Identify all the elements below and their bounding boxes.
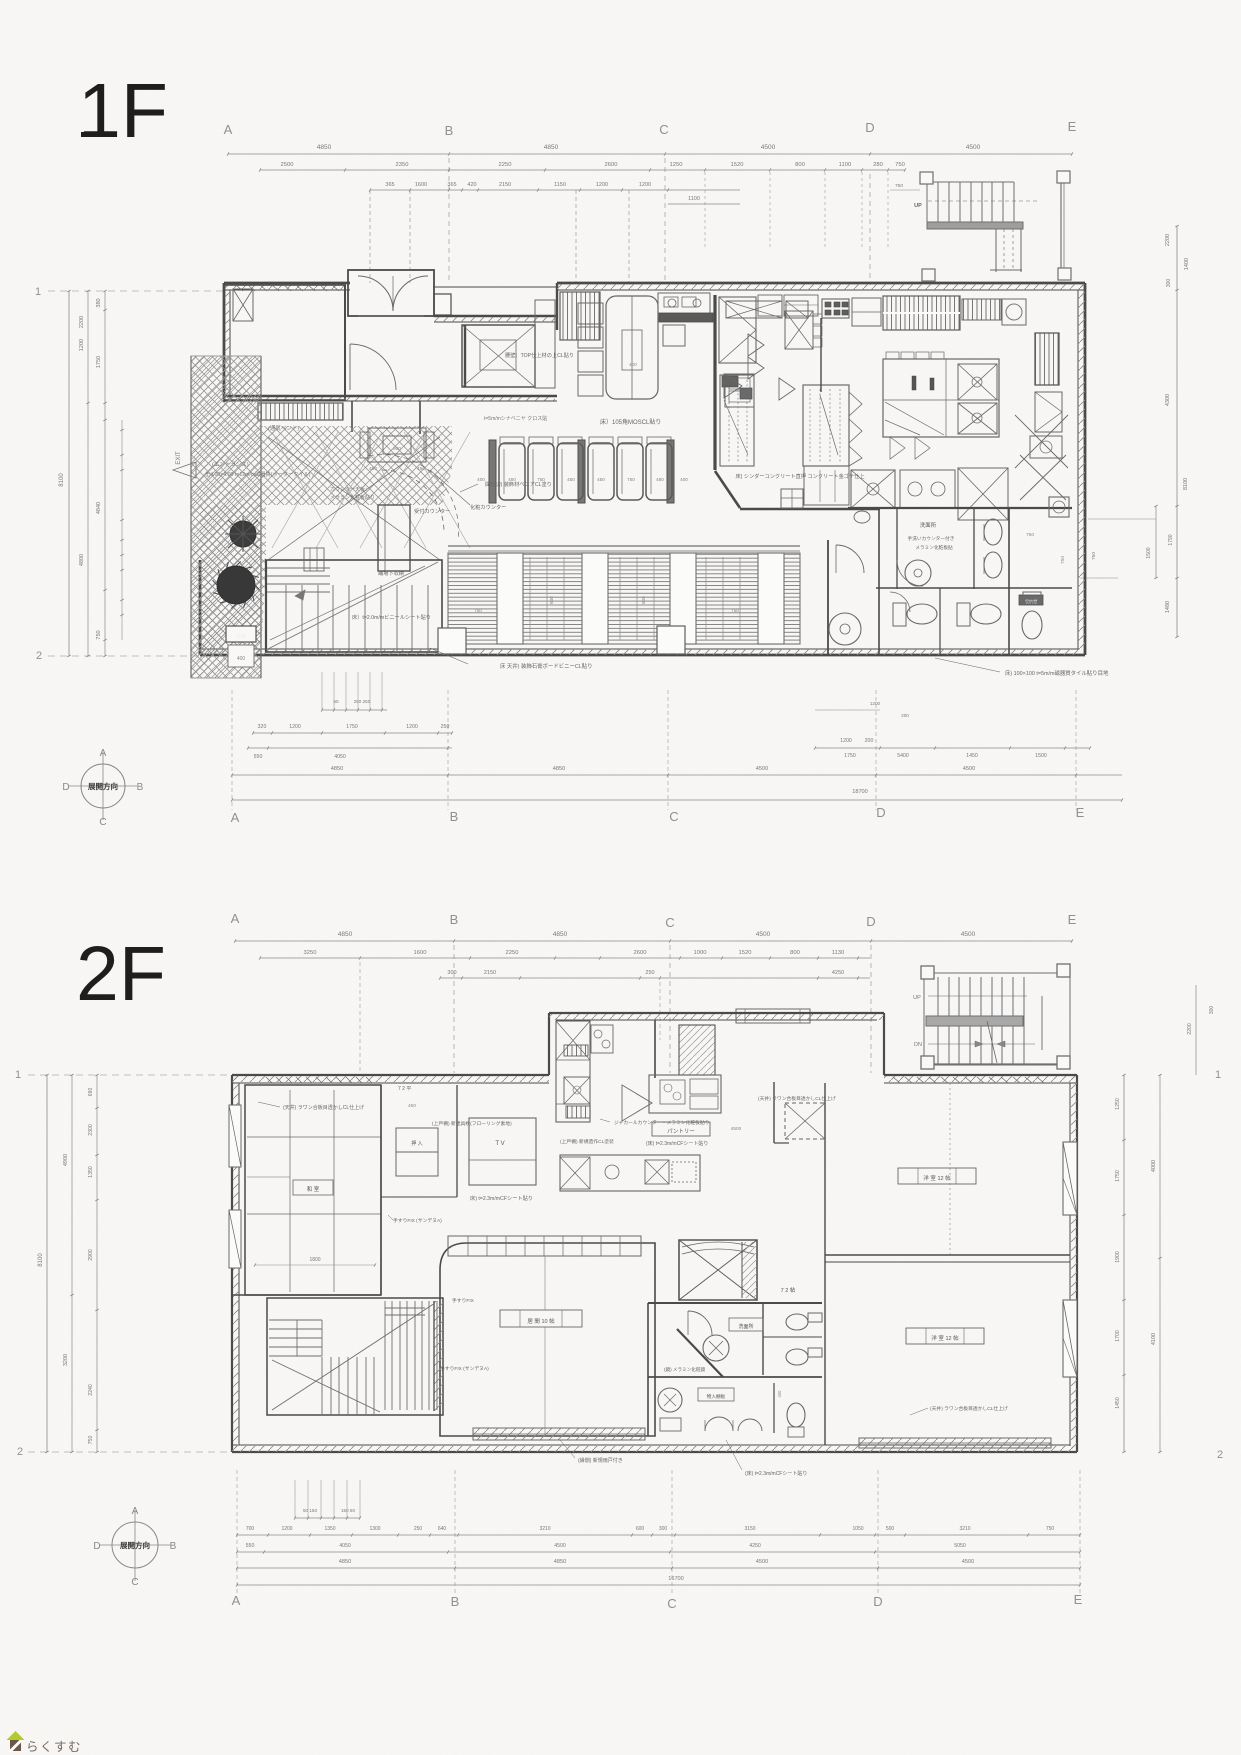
svg-text:(エントランス): (エントランス) <box>212 461 249 468</box>
svg-text:洗面所: 洗面所 <box>920 521 937 529</box>
svg-text:2240: 2240 <box>88 1384 94 1396</box>
svg-text:1520: 1520 <box>731 162 744 168</box>
svg-text:250: 250 <box>414 1526 423 1532</box>
svg-text:4500: 4500 <box>756 766 768 772</box>
svg-text:700: 700 <box>246 1526 255 1532</box>
svg-text:E: E <box>1068 912 1077 927</box>
svg-text:750: 750 <box>627 477 635 482</box>
svg-text:床) 100×100 t=5m/m磁器質タイル貼り目地: 床) 100×100 t=5m/m磁器質タイル貼り目地 <box>1005 669 1109 677</box>
svg-text:居 間 10 帖: 居 間 10 帖 <box>527 1317 555 1325</box>
svg-text:1F: 1F <box>78 68 168 154</box>
svg-text:3250: 3250 <box>304 950 317 956</box>
svg-text:4840: 4840 <box>96 502 102 514</box>
svg-text:C: C <box>99 817 106 828</box>
svg-text:E: E <box>1074 1592 1083 1607</box>
svg-text:600: 600 <box>641 596 646 604</box>
svg-text:1600: 1600 <box>414 950 427 956</box>
svg-text:4850: 4850 <box>544 144 559 151</box>
svg-text:物入棚板: 物入棚板 <box>707 1393 726 1400</box>
svg-text:2600: 2600 <box>634 950 647 956</box>
svg-text:4850: 4850 <box>554 1559 566 1565</box>
svg-text:750: 750 <box>731 608 739 613</box>
svg-text:750: 750 <box>1091 552 1097 560</box>
svg-text:腰壁：TOP仕上材の上CL貼り: 腰壁：TOP仕上材の上CL貼り <box>505 351 574 359</box>
svg-text:400: 400 <box>777 1390 782 1398</box>
svg-text:洗面所: 洗面所 <box>738 1323 753 1330</box>
svg-text:800: 800 <box>795 162 805 168</box>
svg-text:200: 200 <box>865 738 874 744</box>
svg-text:400: 400 <box>629 362 637 367</box>
svg-text:750: 750 <box>1046 1526 1055 1532</box>
svg-text:パントリー: パントリー <box>667 1128 695 1135</box>
svg-text:4500: 4500 <box>761 144 776 151</box>
svg-text:4500: 4500 <box>756 1559 768 1565</box>
svg-text:1000: 1000 <box>694 950 707 956</box>
svg-text:1450: 1450 <box>1115 1397 1121 1409</box>
svg-text:缶4.00×4.00 t=12m/m磁器質(ボーダータイル): 缶4.00×4.00 t=12m/m磁器質(ボーダータイル) <box>205 470 311 478</box>
svg-text:B: B <box>450 809 459 824</box>
svg-text:洋 室 12 帖: 洋 室 12 帖 <box>931 1334 959 1342</box>
svg-text:2150: 2150 <box>499 182 511 188</box>
svg-text:(上戸棚) 新規造作CL塗装: (上戸棚) 新規造作CL塗装 <box>560 1138 614 1145</box>
svg-text:1500: 1500 <box>1035 753 1047 759</box>
svg-text:4850: 4850 <box>338 931 353 938</box>
svg-text:1790: 1790 <box>1168 534 1174 545</box>
svg-text:450: 450 <box>656 477 664 482</box>
svg-text:5050: 5050 <box>954 1543 966 1549</box>
svg-text:植栽: 植栽 <box>236 633 246 640</box>
svg-text:2500: 2500 <box>281 162 294 168</box>
svg-text:4100: 4100 <box>1151 1333 1157 1345</box>
svg-text:1400: 1400 <box>1184 258 1190 270</box>
svg-text:展開方向: 展開方向 <box>87 781 118 791</box>
svg-text:280: 280 <box>873 162 883 168</box>
svg-text:受付カウンター: 受付カウンター <box>414 507 450 515</box>
svg-text:3210: 3210 <box>539 1526 550 1532</box>
svg-text:C: C <box>131 1577 138 1588</box>
svg-text:2200: 2200 <box>1187 1023 1193 1035</box>
svg-text:1200: 1200 <box>596 182 608 188</box>
svg-text:D: D <box>873 1594 882 1609</box>
svg-text:1480: 1480 <box>1165 601 1171 613</box>
svg-text:C: C <box>665 915 674 930</box>
svg-text:手洗いカウンター付き: 手洗いカウンター付き <box>908 535 955 542</box>
svg-text:化粧カウンター: 化粧カウンター <box>470 503 506 511</box>
svg-text:A: A <box>231 911 240 926</box>
svg-text:(縁側) 新規雨戸付き: (縁側) 新規雨戸付き <box>578 1457 623 1464</box>
svg-text:A: A <box>100 748 107 759</box>
svg-text:(床) t=2.3m/mCFシート貼り: (床) t=2.3m/mCFシート貼り <box>745 1470 807 1477</box>
svg-text:1100: 1100 <box>839 162 851 168</box>
svg-text:1: 1 <box>1215 1069 1221 1081</box>
svg-text:UP: UP <box>913 995 921 1001</box>
svg-text:1200: 1200 <box>870 701 881 706</box>
svg-text:800: 800 <box>790 950 800 956</box>
svg-text:300: 300 <box>447 970 456 976</box>
svg-text:床）105角MOSCL貼り: 床）105角MOSCL貼り <box>600 418 661 426</box>
svg-text:4500: 4500 <box>756 931 771 938</box>
svg-text:EXIT: EXIT <box>176 451 182 465</box>
svg-text:押 入: 押 入 <box>411 1140 422 1147</box>
svg-text:1500: 1500 <box>1146 547 1152 558</box>
svg-text:750: 750 <box>96 630 102 639</box>
svg-text:250: 250 <box>645 970 654 976</box>
svg-text:C: C <box>659 122 668 137</box>
svg-text:750: 750 <box>474 608 482 613</box>
svg-text:690: 690 <box>88 1088 94 1097</box>
svg-text:450: 450 <box>417 466 425 472</box>
svg-text:C: C <box>667 1596 676 1611</box>
svg-text:3150: 3150 <box>744 1526 755 1532</box>
svg-text:1200: 1200 <box>406 724 418 730</box>
svg-text:2: 2 <box>1217 1449 1223 1461</box>
svg-text:1: 1 <box>15 1069 21 1081</box>
svg-text:床 天井) 装飾石膏ボードビニーCL貼り: 床 天井) 装飾石膏ボードビニーCL貼り <box>500 662 593 670</box>
svg-text:4050: 4050 <box>334 754 346 760</box>
svg-text:2F: 2F <box>76 931 166 1017</box>
svg-text:手すりFIX: 手すりFIX <box>452 1297 475 1304</box>
svg-text:600: 600 <box>636 1526 645 1532</box>
svg-text:450: 450 <box>408 1103 416 1109</box>
svg-text:8100: 8100 <box>59 473 65 487</box>
svg-text:450: 450 <box>597 477 605 482</box>
svg-text:4800: 4800 <box>79 554 85 566</box>
svg-text:4000: 4000 <box>1151 1160 1157 1172</box>
svg-text:3210: 3210 <box>959 1526 970 1532</box>
svg-text:B: B <box>450 912 459 927</box>
svg-text:4050: 4050 <box>339 1543 351 1549</box>
svg-text:2150: 2150 <box>484 970 496 976</box>
svg-text:1300: 1300 <box>369 1526 380 1532</box>
svg-text:4850: 4850 <box>553 931 568 938</box>
svg-text:手すりFIX (サンデヌA): 手すりFIX (サンデヌA) <box>393 1217 442 1224</box>
svg-text:750: 750 <box>1060 556 1066 564</box>
svg-text:2250: 2250 <box>499 162 512 168</box>
svg-text:C: C <box>669 809 678 824</box>
svg-text:B: B <box>170 1541 177 1552</box>
svg-text:380: 380 <box>96 298 102 307</box>
svg-text:A: A <box>232 1593 241 1608</box>
svg-text:365: 365 <box>385 182 394 188</box>
svg-text:4500: 4500 <box>731 1126 742 1132</box>
svg-text:(上戸棚) 新建具枚(フローリング素地): (上戸棚) 新建具枚(フローリング素地) <box>432 1120 512 1127</box>
svg-text:2600: 2600 <box>605 162 618 168</box>
svg-text:4500: 4500 <box>966 144 981 151</box>
svg-text:16700: 16700 <box>668 1576 684 1582</box>
svg-text:(天井) ラワン合板目透かしCL仕上げ: (天井) ラワン合板目透かしCL仕上げ <box>930 1405 1008 1412</box>
svg-text:D: D <box>62 782 69 793</box>
svg-text:1520: 1520 <box>739 950 752 956</box>
svg-text:E: E <box>1076 805 1085 820</box>
svg-text:300: 300 <box>1209 1006 1215 1015</box>
svg-text:1900: 1900 <box>1115 1251 1121 1263</box>
svg-text:(床) t=2.3m/mCFシート貼り: (床) t=2.3m/mCFシート貼り <box>646 1140 708 1147</box>
svg-text:4250: 4250 <box>832 970 844 976</box>
svg-text:D: D <box>876 805 885 820</box>
svg-text:4500: 4500 <box>554 1543 566 1549</box>
svg-text:2: 2 <box>36 650 42 662</box>
svg-text:550: 550 <box>246 1543 255 1549</box>
svg-text:床) シンダーコンクリート直押 コンクリート金ゴテ仕上: 床) シンダーコンクリート直押 コンクリート金ゴテ仕上 <box>735 472 864 480</box>
svg-text:1200: 1200 <box>289 724 301 730</box>
svg-text:1750: 1750 <box>96 356 102 368</box>
svg-text:D: D <box>93 1541 100 1552</box>
svg-text:1750: 1750 <box>844 753 856 759</box>
svg-text:(天井) ラワン合板目透かしCL仕上げ: (天井) ラワン合板目透かしCL仕上げ <box>758 1095 836 1102</box>
svg-text:(鏡) メラミン化粧鏡: (鏡) メラミン化粧鏡 <box>664 1366 705 1373</box>
svg-text:T V: T V <box>495 1141 504 1147</box>
svg-text:らくすむ: らくすむ <box>26 1740 82 1754</box>
svg-text:床）t=2.0m/mビニールシート貼り: 床）t=2.0m/mビニールシート貼り <box>352 613 431 621</box>
svg-text:洋 室 12 帖: 洋 室 12 帖 <box>923 1174 951 1182</box>
svg-text:320: 320 <box>258 724 267 730</box>
svg-text:50 150: 50 150 <box>303 1508 317 1513</box>
svg-text:450: 450 <box>567 477 575 482</box>
svg-text:UP: UP <box>914 203 922 209</box>
svg-text:2200: 2200 <box>79 316 85 328</box>
svg-text:D: D <box>866 914 875 929</box>
svg-text:間仕切) 装飾材ベニアCL塗り: 間仕切) 装飾材ベニアCL塗り <box>485 480 552 488</box>
svg-text:1350: 1350 <box>324 1526 335 1532</box>
svg-text:床) t=2.3m/mCFシート貼り: 床) t=2.3m/mCFシート貼り <box>470 1194 533 1202</box>
svg-text:メラミン化粧板貼り: メラミン化粧板貼り <box>330 494 375 501</box>
svg-text:750: 750 <box>895 162 905 168</box>
svg-text:450: 450 <box>369 466 377 472</box>
svg-text:18700: 18700 <box>852 789 868 795</box>
svg-text:5400: 5400 <box>897 753 909 759</box>
svg-text:t=5m/mシナベニヤ クロス貼: t=5m/mシナベニヤ クロス貼 <box>484 415 547 422</box>
svg-text:和 室: 和 室 <box>307 1185 320 1193</box>
svg-text:4300: 4300 <box>1165 394 1171 406</box>
svg-text:A: A <box>231 810 240 825</box>
svg-text:300: 300 <box>1166 279 1172 288</box>
svg-text:1130: 1130 <box>832 950 844 956</box>
svg-text:750: 750 <box>895 183 903 189</box>
svg-text:1200: 1200 <box>840 738 852 744</box>
svg-text:D: D <box>865 120 874 135</box>
svg-text:1050: 1050 <box>852 1526 863 1532</box>
svg-text:4500: 4500 <box>962 1559 974 1565</box>
svg-text:7 2 平: 7 2 平 <box>398 1086 411 1092</box>
svg-text:50: 50 <box>333 699 339 704</box>
svg-text:1600: 1600 <box>415 182 427 188</box>
svg-text:DN: DN <box>914 1042 922 1048</box>
svg-text:A: A <box>224 122 233 137</box>
svg-text:1150: 1150 <box>554 182 566 188</box>
svg-text:B: B <box>451 1594 460 1609</box>
svg-text:8100: 8100 <box>38 1253 44 1267</box>
svg-text:4250: 4250 <box>749 1543 761 1549</box>
svg-text:1800: 1800 <box>309 1257 320 1263</box>
svg-text:500: 500 <box>886 1526 895 1532</box>
svg-text:1100: 1100 <box>688 196 700 202</box>
svg-text:4850: 4850 <box>339 1559 351 1565</box>
svg-text:1200: 1200 <box>281 1526 292 1532</box>
svg-text:A: A <box>132 1506 139 1517</box>
svg-text:1750: 1750 <box>1115 1170 1121 1182</box>
svg-text:E: E <box>1068 119 1077 134</box>
svg-text:1: 1 <box>35 286 41 298</box>
svg-text:カウンター天板：: カウンター天板： <box>330 486 370 493</box>
svg-text:7 2 帖: 7 2 帖 <box>781 1286 796 1294</box>
svg-text:300: 300 <box>659 1526 668 1532</box>
svg-text:踊場下収納: 踊場下収納 <box>378 569 404 577</box>
svg-text:900: 900 <box>393 446 401 452</box>
svg-text:4850: 4850 <box>317 144 332 151</box>
svg-text:手すりFIX (サンデヌA): 手すりFIX (サンデヌA) <box>440 1365 489 1372</box>
svg-text:8100: 8100 <box>1183 478 1189 490</box>
svg-text:B: B <box>445 123 454 138</box>
svg-text:400: 400 <box>237 656 246 662</box>
svg-text:2300: 2300 <box>88 1124 94 1136</box>
svg-text:展開方向: 展開方向 <box>119 1540 150 1550</box>
svg-text:400: 400 <box>680 477 688 482</box>
svg-text:600: 600 <box>549 596 554 604</box>
svg-text:1750: 1750 <box>346 724 358 730</box>
svg-text:(天井) ラワン合板目透かしCL仕上げ: (天井) ラワン合板目透かしCL仕上げ <box>283 1104 364 1111</box>
svg-text:550: 550 <box>254 754 263 760</box>
svg-text:1250: 1250 <box>670 162 683 168</box>
svg-text:250 250: 250 250 <box>354 699 371 704</box>
svg-text:1700: 1700 <box>1115 1330 1121 1342</box>
svg-text:2900: 2900 <box>88 1249 94 1261</box>
svg-text:750: 750 <box>1026 532 1034 538</box>
svg-text:640: 640 <box>438 1526 447 1532</box>
svg-text:3200: 3200 <box>63 1354 69 1366</box>
svg-text:2250: 2250 <box>506 950 519 956</box>
svg-text:1200: 1200 <box>79 339 85 351</box>
svg-text:1450: 1450 <box>966 753 978 759</box>
svg-text:2200: 2200 <box>1165 234 1171 246</box>
svg-text:750: 750 <box>88 1436 94 1445</box>
svg-text:1200: 1200 <box>639 182 651 188</box>
svg-text:4850: 4850 <box>331 766 343 772</box>
svg-text:200: 200 <box>901 713 909 718</box>
svg-text:2350: 2350 <box>396 162 409 168</box>
svg-text:2: 2 <box>17 1446 23 1458</box>
svg-text:4850: 4850 <box>553 766 565 772</box>
svg-text:4900: 4900 <box>63 1154 69 1166</box>
svg-text:1350: 1350 <box>88 1166 94 1178</box>
svg-text:420: 420 <box>467 182 476 188</box>
svg-text:B: B <box>137 782 144 793</box>
svg-text:4500: 4500 <box>961 931 976 938</box>
svg-text:4500: 4500 <box>963 766 975 772</box>
svg-text:メラミン化粧板貼: メラミン化粧板貼 <box>915 544 953 551</box>
svg-text:ジャカールカウンター・メラミン化粧板貼り: ジャカールカウンター・メラミン化粧板貼り <box>614 1119 710 1126</box>
svg-text:1250: 1250 <box>1115 1098 1121 1110</box>
svg-text:150 50: 150 50 <box>341 1508 355 1513</box>
